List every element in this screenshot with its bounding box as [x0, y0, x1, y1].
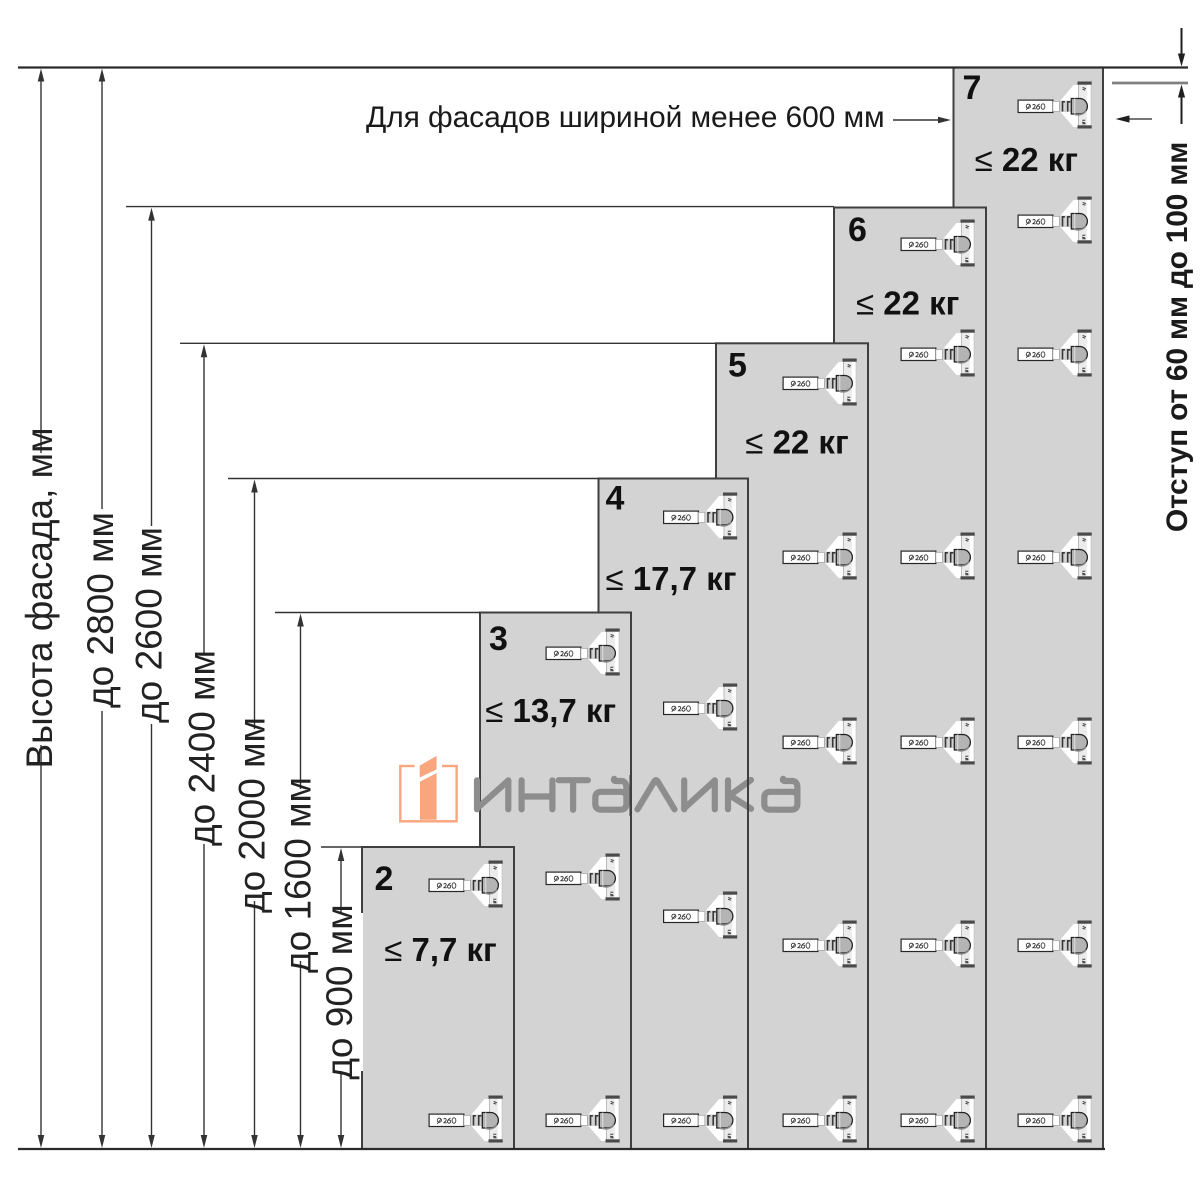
svg-text:до 2800 мм: до 2800 мм	[80, 512, 121, 708]
svg-text:4: 4	[606, 480, 625, 518]
svg-text:2: 2	[375, 860, 394, 898]
svg-text:до 2600 мм: до 2600 мм	[129, 527, 170, 723]
svg-text:7: 7	[963, 69, 982, 107]
svg-text:≤ 7,7 кг: ≤ 7,7 кг	[384, 931, 497, 968]
svg-text:до 2400 мм: до 2400 мм	[182, 650, 223, 846]
svg-text:6: 6	[848, 211, 867, 249]
svg-text:5: 5	[728, 346, 747, 384]
svg-text:≤ 17,7 кг: ≤ 17,7 кг	[606, 560, 737, 597]
svg-text:≤ 22 кг: ≤ 22 кг	[975, 141, 1078, 178]
svg-text:≤ 13,7 кг: ≤ 13,7 кг	[485, 692, 616, 729]
svg-text:3: 3	[489, 620, 508, 658]
svg-text:до 1600 мм: до 1600 мм	[278, 777, 319, 973]
svg-text:≤ 22 кг: ≤ 22 кг	[856, 285, 959, 322]
svg-text:Для фасадов шириной менее 600: Для фасадов шириной менее 600 мм	[366, 101, 885, 134]
svg-text:до 900 мм: до 900 мм	[319, 904, 360, 1079]
svg-text:Отступ от 60 мм до 100 мм: Отступ от 60 мм до 100 мм	[1161, 142, 1194, 532]
svg-text:до 2000 мм: до 2000 мм	[232, 717, 273, 913]
svg-text:≤ 22 кг: ≤ 22 кг	[745, 424, 848, 461]
svg-text:Высота фасада, мм: Высота фасада, мм	[19, 427, 60, 768]
